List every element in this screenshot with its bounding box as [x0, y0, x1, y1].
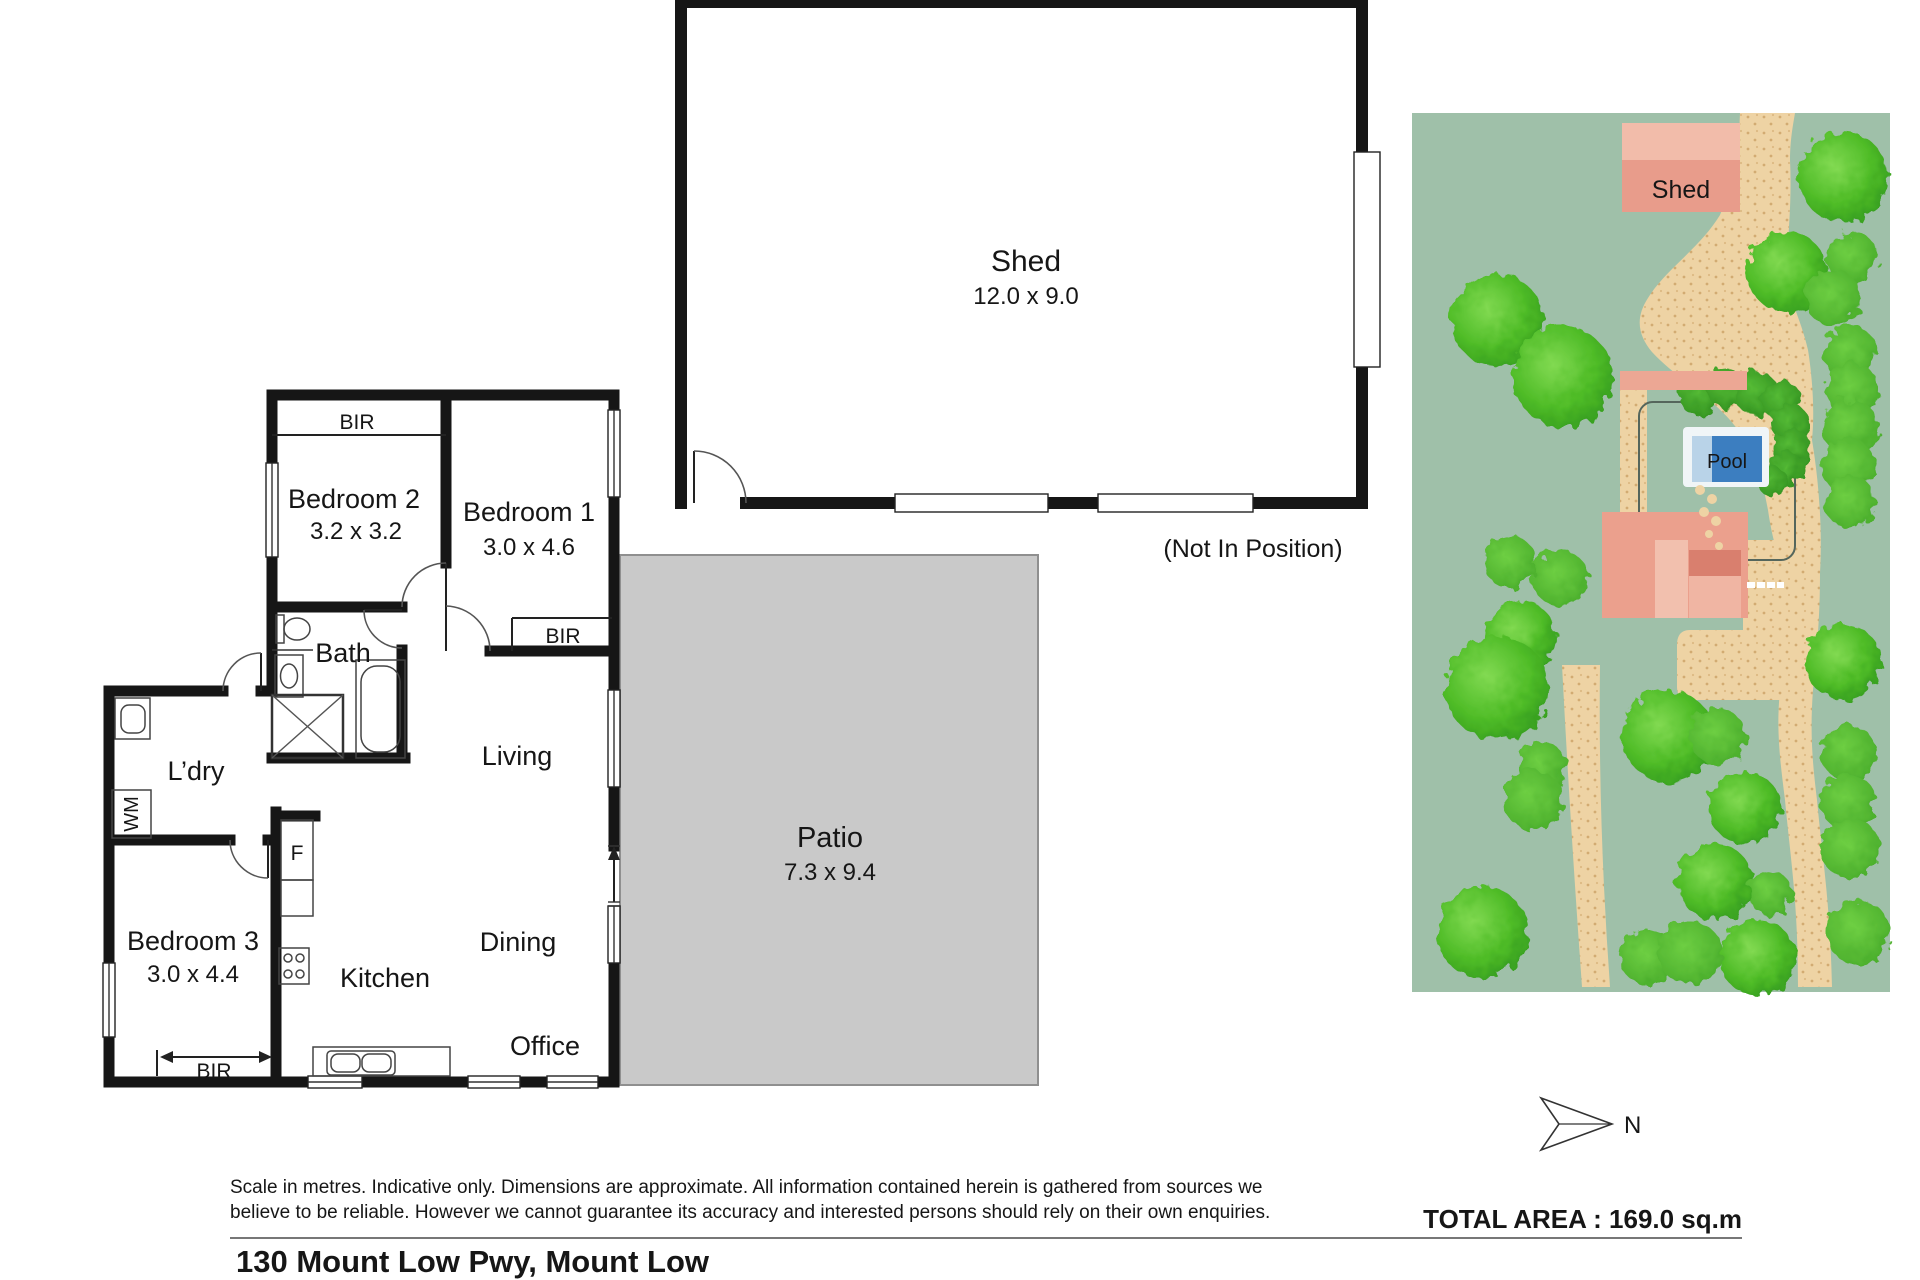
stove-box [279, 948, 309, 984]
shower [272, 695, 343, 758]
door-laundry-arc [223, 653, 261, 691]
burner [296, 970, 304, 978]
shed-window-bottom-1 [895, 494, 1048, 512]
toilet-bowl [284, 618, 310, 640]
site-shed-roof [1622, 123, 1740, 160]
bush [1826, 900, 1890, 964]
bir3-arrow-right [259, 1051, 272, 1063]
address: 130 Mount Low Pwy, Mount Low [236, 1244, 710, 1279]
sink-bowl [362, 1054, 391, 1072]
patio-slab [620, 555, 1038, 1085]
site-shed-label: Shed [1652, 176, 1710, 204]
site-house-panel-dark [1689, 550, 1741, 576]
vanity-cabinet [275, 655, 303, 697]
shed-window-bottom-2 [1098, 494, 1253, 512]
bush [1824, 476, 1876, 528]
tree [1709, 772, 1781, 844]
floorplan-page: Shed Pool Patio 7.3 x 9.4 Shed 12.0 x 9.… [0, 0, 1920, 1280]
sink-bowl [331, 1054, 360, 1072]
tree [1805, 624, 1881, 700]
patio-label: Patio [797, 822, 863, 854]
bush [1748, 871, 1792, 915]
shed-plan: Shed 12.0 x 9.0 (Not In Position) [681, 0, 1380, 563]
shower-cross [272, 695, 343, 758]
stone [1699, 507, 1709, 517]
door-bed3-arc [230, 840, 268, 878]
tree [1513, 327, 1613, 427]
bedroom3-label: Bedroom 3 [127, 926, 259, 956]
stone [1695, 485, 1705, 495]
living-label: Living [482, 741, 553, 771]
bir1-label: BIR [545, 625, 580, 648]
shed-label: Shed [991, 245, 1061, 278]
tree [1677, 844, 1753, 920]
stone [1705, 530, 1713, 538]
bedroom2-label: Bedroom 2 [288, 484, 420, 514]
site-pergola [1620, 371, 1747, 390]
door-bed1-arc [446, 606, 490, 651]
stone [1707, 494, 1717, 504]
stone [1715, 542, 1723, 550]
north-label: N [1624, 1112, 1641, 1139]
kitchen-cabinet [281, 880, 313, 916]
door-bed2-arc [402, 563, 446, 607]
bush [1820, 818, 1880, 878]
burner [296, 954, 304, 962]
window-dash [1747, 582, 1755, 588]
burner [284, 954, 292, 962]
bush [1484, 536, 1536, 588]
shed-note: (Not In Position) [1163, 535, 1342, 563]
bath-label: Bath [315, 638, 371, 668]
bir3-label: BIR [196, 1060, 231, 1083]
laundry-label: L’dry [167, 756, 225, 786]
site-plan: Shed Pool [1412, 113, 1890, 996]
vanity-basin [281, 664, 298, 688]
bedroom2-dims: 3.2 x 3.2 [310, 518, 402, 545]
office-label: Office [510, 1031, 580, 1061]
fridge-label: F [291, 842, 304, 865]
floorplan-svg: Shed Pool Patio 7.3 x 9.4 Shed 12.0 x 9.… [0, 0, 1920, 1280]
tree [1720, 920, 1796, 996]
site-house-panel [1655, 540, 1688, 618]
bush [1532, 550, 1588, 606]
bush [1658, 921, 1722, 985]
bathtub-inner [361, 666, 400, 752]
compass: N [1541, 1098, 1641, 1150]
shed-dims: 12.0 x 9.0 [973, 283, 1078, 310]
wm-label: WM [121, 796, 143, 832]
stove [279, 948, 309, 984]
site-pool-label: Pool [1707, 451, 1747, 473]
tree [1436, 886, 1528, 978]
bush [1820, 724, 1876, 780]
stone [1711, 516, 1721, 526]
site-house-building [1602, 512, 1748, 618]
room-labels: Bedroom 2 3.2 x 3.2 Bedroom 1 3.0 x 4.6 … [121, 411, 595, 1083]
shed-window-right [1354, 152, 1380, 367]
window-dash [1757, 582, 1765, 588]
dining-label: Dining [480, 927, 557, 957]
shed-door-arc [694, 451, 746, 503]
bush [1805, 270, 1861, 326]
bedroom1-label: Bedroom 1 [463, 497, 595, 527]
window-dash [1767, 582, 1775, 588]
footer: Scale in metres. Indicative only. Dimens… [230, 1177, 1742, 1279]
kitchen-bench [313, 1047, 450, 1076]
patio-dims: 7.3 x 9.4 [784, 859, 876, 886]
tree [1798, 132, 1888, 222]
bush [1503, 770, 1563, 830]
laundry-tub-basin [121, 705, 145, 733]
patio: Patio 7.3 x 9.4 [620, 555, 1038, 1085]
bir2-label: BIR [339, 411, 374, 434]
burner [284, 970, 292, 978]
disclaimer-line-2: believe to be reliable. However we canno… [230, 1202, 1270, 1223]
bedroom1-dims: 3.0 x 4.6 [483, 534, 575, 561]
kitchen-label: Kitchen [340, 963, 430, 993]
bir3-arrow-left [160, 1051, 173, 1063]
disclaimer-line-1: Scale in metres. Indicative only. Dimens… [230, 1177, 1263, 1198]
site-house-panel-light [1689, 576, 1741, 618]
bush [1689, 708, 1745, 764]
tree [1445, 636, 1549, 740]
bedroom3-dims: 3.0 x 4.4 [147, 961, 239, 988]
window-dash [1777, 582, 1784, 588]
total-area: TOTAL AREA : 169.0 sq.m [1423, 1204, 1742, 1234]
